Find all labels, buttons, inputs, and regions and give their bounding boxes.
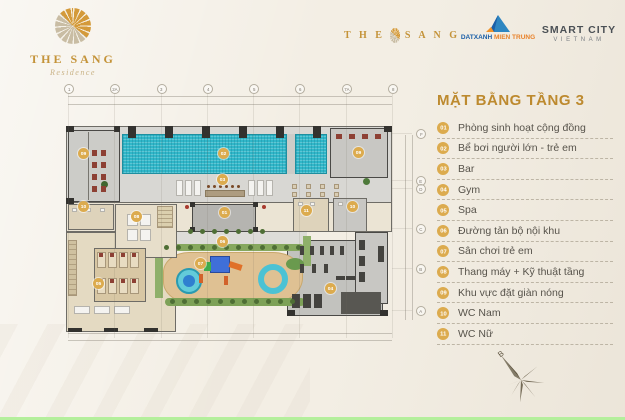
grid-label-right: F bbox=[416, 129, 426, 139]
play-post bbox=[199, 274, 203, 283]
massage-bed-pillow bbox=[110, 253, 114, 257]
play-ring bbox=[258, 264, 288, 294]
play-structure bbox=[210, 256, 230, 273]
shrub bbox=[164, 245, 169, 250]
shrub bbox=[188, 245, 193, 250]
shrub bbox=[260, 229, 265, 234]
wc-fixture bbox=[100, 208, 105, 212]
flower-pot bbox=[185, 205, 189, 209]
shrub bbox=[248, 245, 253, 250]
shrub bbox=[200, 229, 205, 234]
condenser-unit bbox=[92, 186, 97, 192]
plan-badge-05: 05 bbox=[93, 278, 104, 289]
wall-segment bbox=[380, 310, 388, 316]
pool-lounger bbox=[176, 180, 183, 196]
construction-gridline bbox=[392, 133, 412, 134]
construction-gridline bbox=[392, 228, 412, 229]
shrub bbox=[284, 245, 289, 250]
deck-chair bbox=[306, 192, 311, 197]
plan-badge-02: 02 bbox=[218, 148, 229, 159]
grid-label-right: B bbox=[416, 264, 426, 274]
dimension-line-bottom bbox=[68, 333, 392, 334]
shrub bbox=[206, 299, 211, 304]
deck-chair bbox=[306, 184, 311, 189]
massage-bed-pillow bbox=[132, 253, 136, 257]
spa-lounger bbox=[94, 306, 110, 314]
gym-equipment bbox=[300, 246, 304, 255]
bar-stool bbox=[237, 185, 240, 188]
plan-badge-04: 04 bbox=[325, 283, 336, 294]
hedge bbox=[160, 244, 304, 251]
shrub bbox=[278, 299, 283, 304]
shrub bbox=[176, 245, 181, 250]
pool-lounger bbox=[257, 180, 264, 196]
shrub bbox=[182, 299, 187, 304]
shrub bbox=[290, 299, 295, 304]
flower-pot bbox=[262, 205, 266, 209]
spa-lounger bbox=[74, 306, 90, 314]
pool-wall-block bbox=[165, 126, 173, 138]
shrub bbox=[188, 229, 193, 234]
condenser-unit bbox=[101, 162, 106, 168]
dimension-line-bottom bbox=[68, 340, 392, 341]
wall-segment bbox=[104, 328, 118, 332]
pool-lounger bbox=[266, 180, 273, 196]
shrub bbox=[218, 299, 223, 304]
plan-badge-01: 01 bbox=[219, 207, 230, 218]
construction-gridline bbox=[392, 94, 393, 338]
pool-wall-block bbox=[276, 126, 284, 138]
deck-chair bbox=[320, 192, 325, 197]
dimension-line-right bbox=[412, 135, 413, 320]
gym-equipment bbox=[324, 264, 328, 273]
shrub bbox=[224, 229, 229, 234]
condenser-unit bbox=[101, 174, 106, 180]
condenser-unit bbox=[92, 162, 97, 168]
grid-label-top: 4 bbox=[203, 84, 213, 94]
pool-lounger bbox=[185, 180, 192, 196]
plan-badge-09: 09 bbox=[353, 147, 364, 158]
equipment-rack bbox=[359, 272, 365, 282]
condenser-unit bbox=[101, 186, 106, 192]
construction-gridline bbox=[392, 188, 412, 189]
plan-badge-07: 07 bbox=[195, 258, 206, 269]
massage-bed-pillow bbox=[132, 279, 136, 283]
plan-badge-10: 10 bbox=[347, 201, 358, 212]
elevator-cab bbox=[140, 214, 151, 226]
grid-label-right: C bbox=[416, 224, 426, 234]
deck-chair bbox=[320, 184, 325, 189]
condenser-unit bbox=[92, 174, 97, 180]
pool-wall-block bbox=[239, 126, 247, 138]
condenser-unit bbox=[92, 150, 97, 156]
gym-equipment bbox=[340, 246, 344, 255]
shrub bbox=[194, 299, 199, 304]
pool-wall-block bbox=[313, 126, 321, 138]
grid-label-top: 3 bbox=[157, 84, 167, 94]
page: THE SANG Residence T H E S A N G DATXANH… bbox=[0, 0, 625, 420]
column bbox=[190, 202, 195, 207]
gym-equipment bbox=[300, 264, 304, 273]
condenser-unit bbox=[349, 134, 355, 139]
pool-divider bbox=[287, 134, 295, 174]
spa-lounger bbox=[114, 306, 130, 314]
lockers bbox=[68, 240, 77, 296]
plan-badge-06: 06 bbox=[217, 236, 228, 247]
plan-badge-10: 10 bbox=[78, 201, 89, 212]
bar-stool bbox=[219, 185, 222, 188]
gym-equipment bbox=[310, 246, 314, 255]
stairs bbox=[157, 206, 173, 228]
gym-storage bbox=[341, 292, 381, 314]
shrub bbox=[236, 245, 241, 250]
construction-gridline bbox=[299, 94, 300, 338]
pool-lounger bbox=[248, 180, 255, 196]
pool-wall-block bbox=[128, 126, 136, 138]
deck-chair bbox=[292, 192, 297, 197]
pool-adult bbox=[122, 134, 287, 174]
pool-lounger bbox=[194, 180, 201, 196]
pool-wall-block bbox=[202, 126, 210, 138]
floor-plan: 12A34567A8FEDCBA090209031008011110060705… bbox=[0, 0, 625, 420]
wc-fixture bbox=[72, 208, 77, 212]
wc-fixture bbox=[310, 202, 315, 206]
shrub bbox=[266, 299, 271, 304]
shrub bbox=[170, 299, 175, 304]
wall-segment bbox=[287, 310, 295, 316]
massage-bed-pillow bbox=[110, 279, 114, 283]
dimension-line-top bbox=[68, 104, 392, 105]
construction-gridline bbox=[392, 310, 412, 311]
bar-stool bbox=[225, 185, 228, 188]
construction-gridline bbox=[392, 180, 412, 181]
plan-badge-11: 11 bbox=[301, 205, 312, 216]
plan-badge-08: 08 bbox=[131, 211, 142, 222]
plan-badge-09: 09 bbox=[78, 148, 89, 159]
massage-bed-pillow bbox=[99, 253, 103, 257]
partition bbox=[88, 132, 89, 200]
shrub bbox=[242, 299, 247, 304]
grid-label-right: A bbox=[416, 306, 426, 316]
grid-label-top: 6 bbox=[295, 84, 305, 94]
elevator-cab bbox=[127, 229, 138, 241]
condenser-unit bbox=[336, 134, 342, 139]
shrub bbox=[236, 229, 241, 234]
shrub bbox=[212, 245, 217, 250]
deck-chair bbox=[334, 184, 339, 189]
wc-fixture bbox=[338, 202, 343, 206]
massage-bed-pillow bbox=[121, 253, 125, 257]
shrub bbox=[260, 245, 265, 250]
shrub bbox=[212, 229, 217, 234]
shrub bbox=[248, 229, 253, 234]
grid-label-top: 1 bbox=[64, 84, 74, 94]
bar-stool bbox=[207, 185, 210, 188]
gym-equipment bbox=[320, 246, 324, 255]
condenser-unit bbox=[362, 134, 368, 139]
gym-equipment bbox=[312, 264, 316, 273]
shrub bbox=[230, 299, 235, 304]
construction-gridline bbox=[392, 268, 412, 269]
bar-counter bbox=[205, 190, 245, 197]
dimension-line-top bbox=[68, 96, 392, 97]
gym-equipment bbox=[330, 246, 334, 255]
grid-label-top: 2A bbox=[110, 84, 120, 94]
shrub bbox=[254, 299, 259, 304]
equipment-rack bbox=[378, 246, 384, 262]
treadmill bbox=[303, 294, 311, 308]
grid-label-top: 5 bbox=[249, 84, 259, 94]
bar-stool bbox=[231, 185, 234, 188]
wall-segment bbox=[68, 328, 82, 332]
wall-segment bbox=[144, 328, 158, 332]
wall-segment bbox=[384, 126, 392, 132]
plan-badge-03: 03 bbox=[217, 174, 228, 185]
equipment-rack bbox=[359, 256, 365, 266]
shrub bbox=[200, 245, 205, 250]
construction-gridline bbox=[114, 94, 115, 338]
treadmill bbox=[314, 294, 322, 308]
construction-gridline bbox=[161, 94, 162, 338]
construction-gridline bbox=[346, 94, 347, 338]
play-post bbox=[224, 276, 228, 285]
splash-pool-center bbox=[183, 275, 195, 287]
condenser-unit bbox=[101, 150, 106, 156]
deck-chair bbox=[334, 192, 339, 197]
construction-gridline bbox=[68, 94, 69, 338]
shrub bbox=[272, 245, 277, 250]
gym-equipment bbox=[346, 276, 355, 280]
elevator-cab bbox=[140, 229, 151, 241]
grid-label-right: D bbox=[416, 184, 426, 194]
condenser-unit bbox=[375, 134, 381, 139]
equipment-rack bbox=[359, 240, 365, 250]
massage-bed-pillow bbox=[121, 279, 125, 283]
deck-chair bbox=[292, 184, 297, 189]
grid-label-top: 8 bbox=[388, 84, 398, 94]
bar-stool bbox=[213, 185, 216, 188]
planter bbox=[363, 178, 370, 185]
grid-label-top: 7A bbox=[342, 84, 352, 94]
gym-equipment bbox=[336, 276, 345, 280]
